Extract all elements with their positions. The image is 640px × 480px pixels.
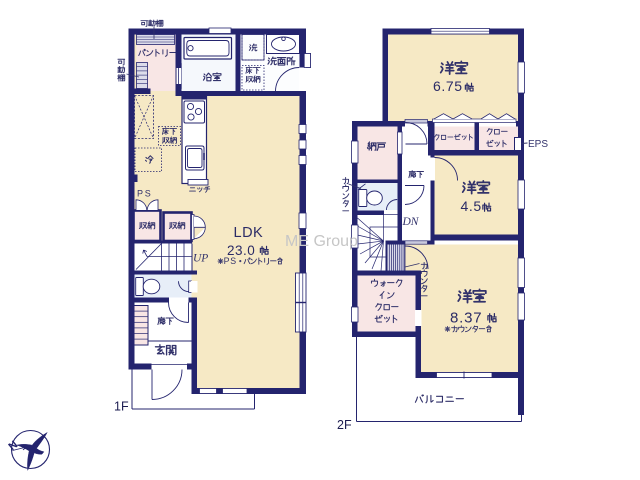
svg-text:6.75: 6.75 [433,78,463,94]
svg-text:1F: 1F [114,400,129,414]
svg-text:2F: 2F [337,418,352,432]
svg-text:PS: PS [137,189,153,199]
svg-text:EPS: EPS [528,139,548,150]
svg-text:P: P [224,256,230,266]
svg-text:LDK: LDK [234,225,264,241]
svg-text:4.5: 4.5 [461,198,482,214]
svg-text:ME Group: ME Group [285,233,358,250]
svg-text:UP: UP [193,253,208,265]
svg-text:DN: DN [402,216,420,228]
svg-text:8.37: 8.37 [450,310,482,327]
svg-text:S: S [230,256,236,266]
